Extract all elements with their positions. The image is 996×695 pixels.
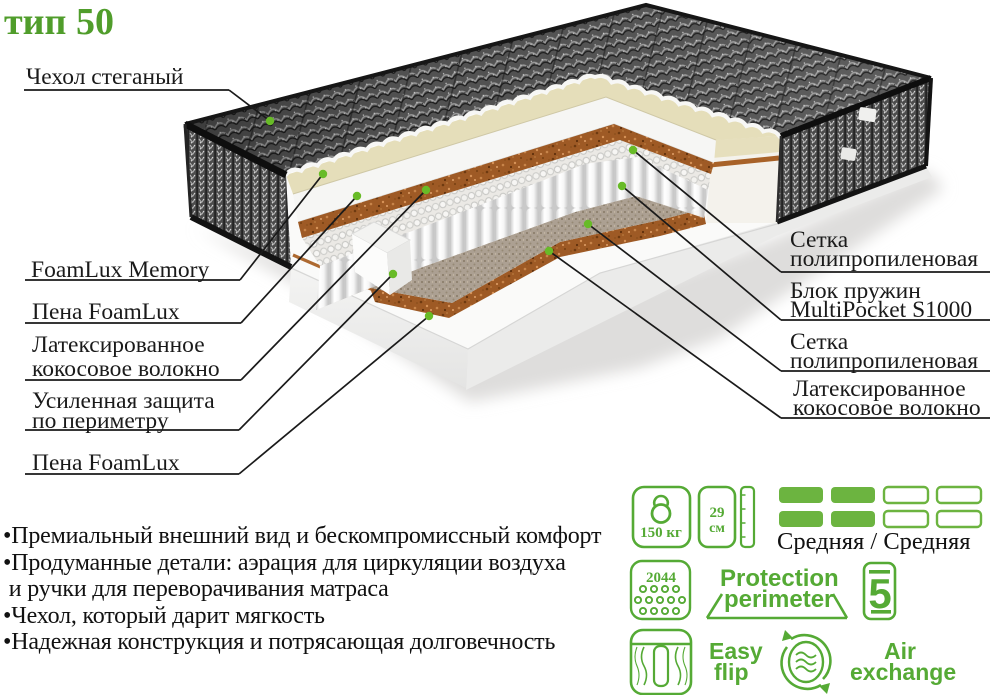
svg-text:perimeter: perimeter	[724, 586, 833, 613]
svg-text:FoamLux Memory: FoamLux Memory	[31, 257, 209, 283]
svg-text:полипропиленовая: полипропиленовая	[790, 246, 978, 272]
svg-text:MultiPocket S1000: MultiPocket S1000	[790, 297, 972, 323]
svg-text:Пена FoamLux: Пена FoamLux	[32, 299, 180, 325]
svg-text:полипропиленовая: полипропиленовая	[790, 348, 978, 374]
svg-text:Пена FoamLux: Пена FoamLux	[32, 450, 180, 476]
svg-text:см: см	[709, 521, 725, 536]
svg-text:29: 29	[710, 505, 725, 521]
svg-text:кокосовое волокно: кокосовое волокно	[793, 395, 981, 421]
svg-text:Чехол стеганый: Чехол стеганый	[26, 64, 184, 90]
svg-text:кокосовое волокно: кокосовое волокно	[32, 356, 220, 382]
svg-text:5: 5	[868, 570, 891, 617]
svg-text:Средняя / Средняя: Средняя / Средняя	[777, 528, 971, 555]
svg-text:exchange: exchange	[850, 659, 956, 685]
svg-text:Латексированное: Латексированное	[32, 332, 205, 358]
svg-text:flip: flip	[714, 659, 749, 685]
svg-text:2044: 2044	[646, 570, 677, 586]
svg-text:150 кг: 150 кг	[640, 525, 682, 541]
